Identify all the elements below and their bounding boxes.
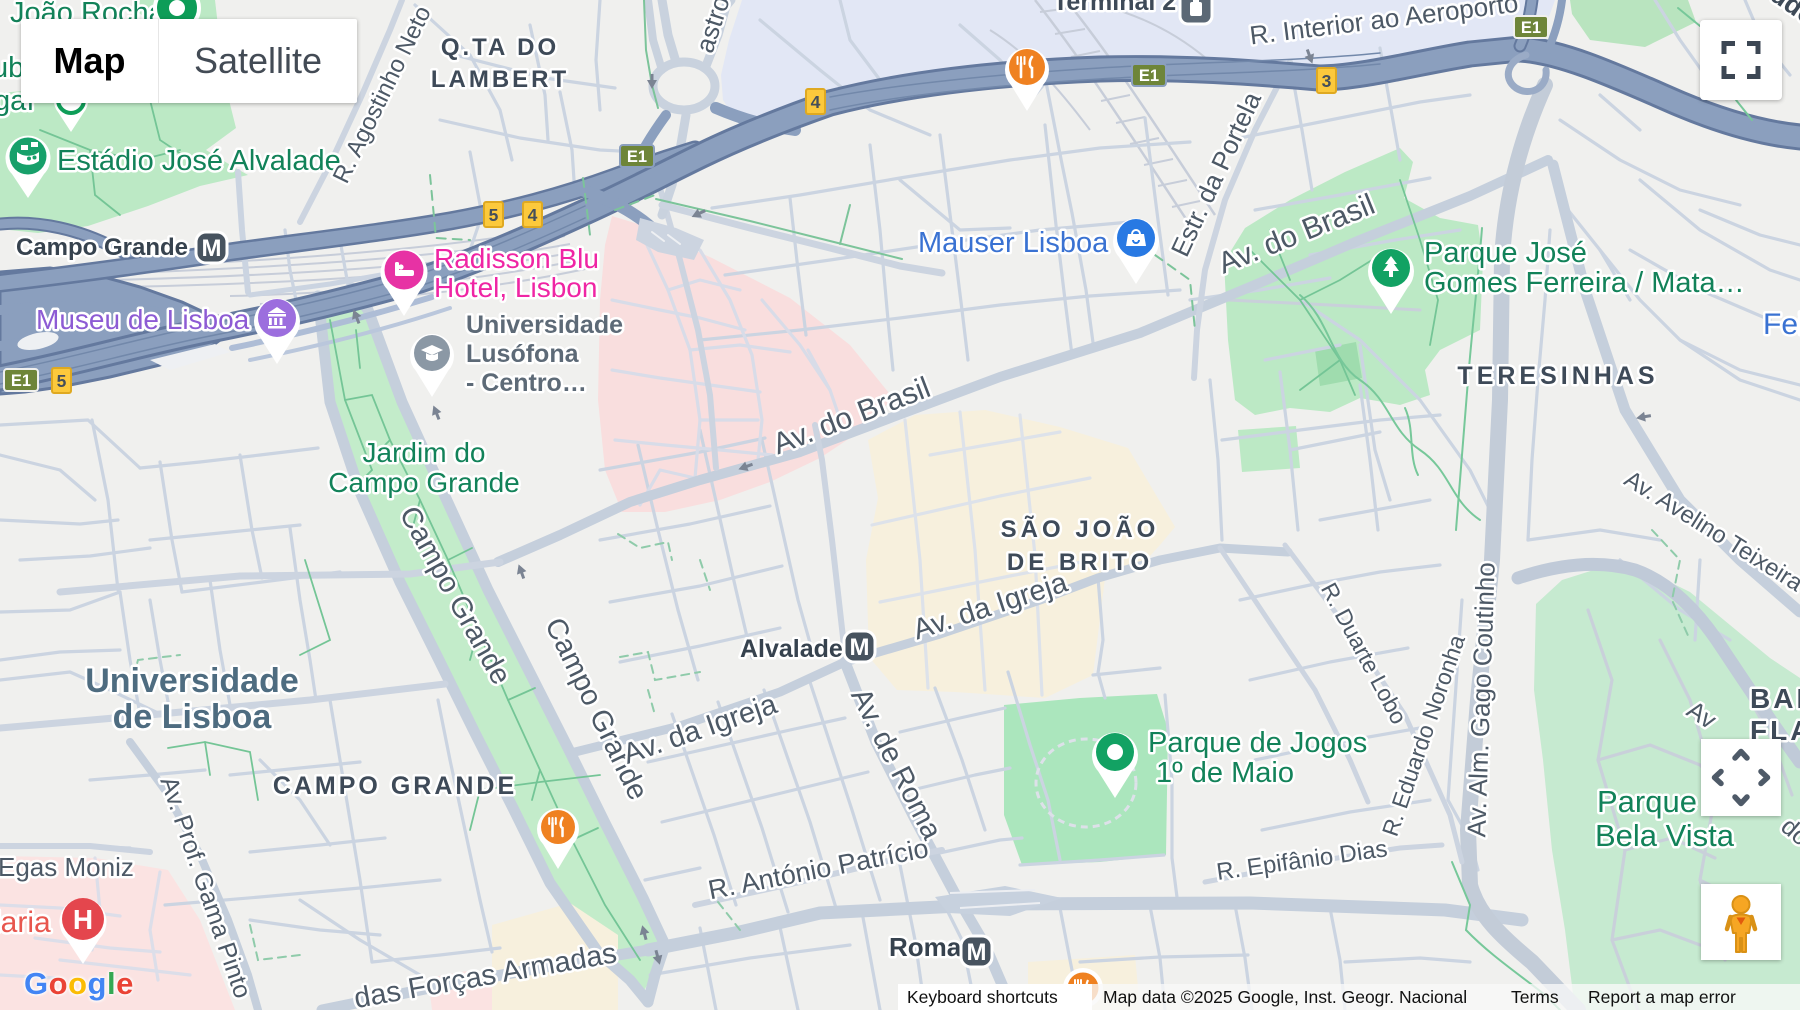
svg-text:de Lisboa: de Lisboa [113, 698, 273, 736]
svg-text:Universidade: Universidade [466, 311, 623, 339]
svg-text:M: M [850, 634, 870, 661]
svg-text:M: M [202, 235, 222, 262]
svg-text:LAMBERT: LAMBERT [431, 66, 569, 93]
svg-text:4: 4 [528, 205, 538, 225]
svg-text:Terminal 2: Terminal 2 [1053, 0, 1176, 16]
svg-text:CAMPO GRANDE: CAMPO GRANDE [273, 772, 517, 800]
svg-text:BAI: BAI [1750, 683, 1800, 714]
svg-text:TERESINHAS: TERESINHAS [1457, 362, 1658, 390]
svg-text:E1: E1 [1139, 67, 1159, 85]
svg-text:E1: E1 [1521, 19, 1541, 37]
svg-text:Parque José: Parque José [1424, 237, 1587, 269]
svg-text:Campo Grande: Campo Grande [328, 467, 519, 498]
svg-text:E1: E1 [11, 372, 31, 390]
svg-text:Gomes Ferreira / Mata…: Gomes Ferreira / Mata… [1424, 267, 1745, 299]
svg-text:H: H [73, 904, 93, 935]
svg-text:Lusófona: Lusófona [466, 340, 580, 368]
svg-text:Jardim do: Jardim do [363, 437, 486, 468]
svg-text:Roma: Roma [889, 932, 962, 962]
svg-text:Parque de Jogos: Parque de Jogos [1148, 727, 1367, 759]
svg-text:laria: laria [0, 906, 51, 939]
svg-text:- Centro…: - Centro… [466, 369, 587, 397]
svg-text:5: 5 [489, 205, 499, 225]
svg-text:M: M [967, 939, 987, 966]
svg-text:Mauser Lisboa: Mauser Lisboa [918, 227, 1109, 259]
svg-text:5: 5 [57, 371, 67, 391]
svg-text:DE BRITO: DE BRITO [1007, 549, 1153, 576]
svg-text:Hotel, Lisbon: Hotel, Lisbon [434, 272, 597, 303]
svg-text:4: 4 [811, 92, 821, 112]
svg-text:3: 3 [1322, 71, 1332, 91]
svg-text:SÃO JOÃO: SÃO JOÃO [1001, 515, 1160, 543]
svg-text:Alvalade: Alvalade [740, 635, 843, 663]
svg-text:1º de Maio: 1º de Maio [1156, 757, 1294, 789]
svg-text:Universidade: Universidade [85, 662, 299, 700]
svg-text:Radisson Blu: Radisson Blu [434, 243, 599, 274]
svg-text:Campo Grande: Campo Grande [16, 234, 188, 261]
svg-text:Bela Vista: Bela Vista [1595, 818, 1735, 853]
svg-text:Egas Moniz: Egas Moniz [0, 852, 134, 882]
svg-text:Feira: Feira [1763, 308, 1800, 341]
svg-text:Estádio José Alvalade: Estádio José Alvalade [57, 145, 341, 177]
svg-text:Q.TA DO: Q.TA DO [441, 34, 559, 61]
svg-text:Museu de Lisboa: Museu de Lisboa [36, 304, 250, 335]
svg-text:E1: E1 [627, 148, 647, 166]
